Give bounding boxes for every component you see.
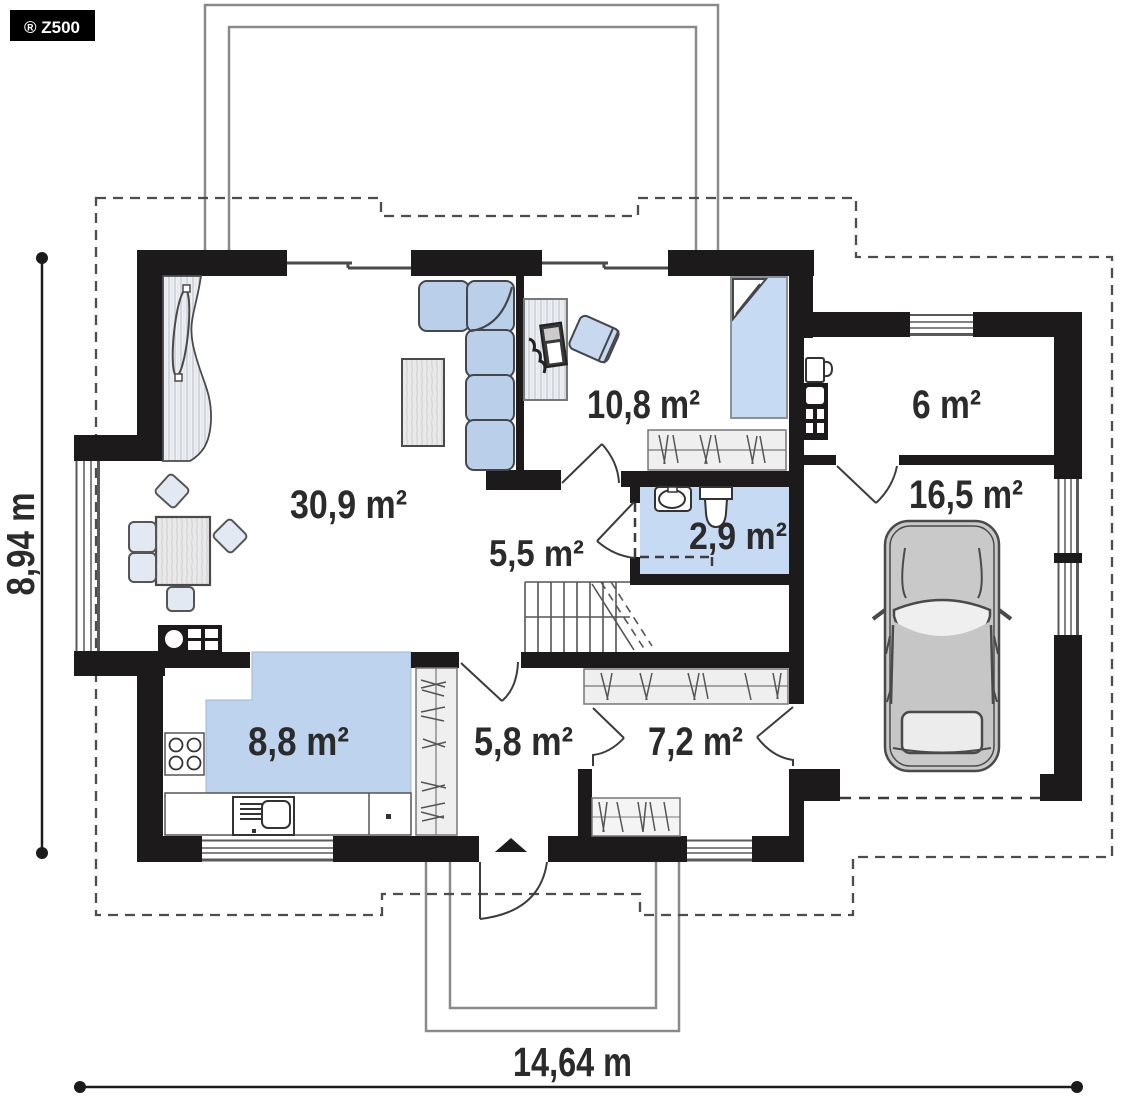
- svg-text:16,5 m²: 16,5 m²: [909, 473, 1023, 517]
- svg-text:5,8 m²: 5,8 m²: [474, 720, 573, 764]
- svg-text:8,8 m²: 8,8 m²: [248, 720, 349, 764]
- svg-text:8,94 m: 8,94 m: [0, 493, 43, 596]
- svg-text:® Z500: ® Z500: [24, 18, 80, 37]
- svg-text:10,8 m²: 10,8 m²: [587, 383, 700, 427]
- svg-text:2,9 m²: 2,9 m²: [689, 516, 787, 558]
- svg-text:7,2 m²: 7,2 m²: [648, 720, 743, 764]
- svg-text:30,9 m²: 30,9 m²: [290, 483, 407, 527]
- svg-text:14,64 m: 14,64 m: [513, 1039, 632, 1085]
- svg-text:6 m²: 6 m²: [912, 383, 981, 427]
- svg-text:5,5 m²: 5,5 m²: [489, 533, 584, 574]
